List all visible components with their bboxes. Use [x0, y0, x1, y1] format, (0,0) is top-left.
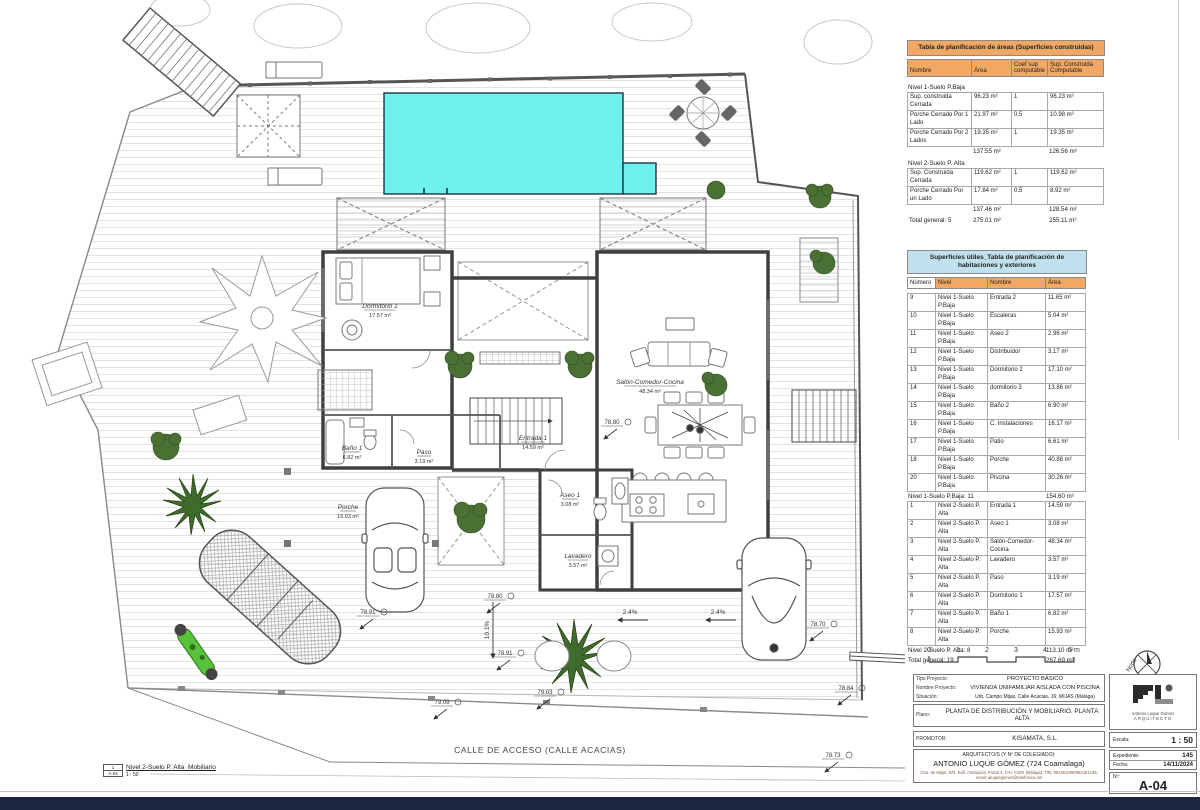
elevation-arrow	[434, 709, 447, 719]
room-label: Dormitorio 1	[362, 303, 398, 310]
table-cell	[1011, 204, 1047, 215]
table-cell: Aseo 1	[987, 519, 1046, 538]
logo-icon	[1131, 683, 1175, 709]
table-cell: Porche Cerrado Por 2 Lados	[907, 128, 972, 147]
fecha-value: 14/11/2024	[1163, 762, 1193, 768]
car-driveway	[737, 538, 811, 660]
table-cell: 17.57 m²	[1045, 591, 1086, 610]
table-cell: 128.54 m²	[1047, 204, 1103, 215]
table-cell: Nivel 2-Suelo P. Alta	[935, 537, 988, 556]
table-row: 15Nivel 1-Suelo P.BajaBaño 26.90 m²	[907, 401, 1087, 419]
table-cell: Sup. construida Cerrada	[907, 92, 972, 111]
drawing-sheet: Dormitorio 117.57 m²Baño 16.82 m²Paso3.1…	[0, 0, 1200, 810]
nombre-label: Nombre Proyecto:	[916, 685, 968, 691]
table-row: 8Nivel 2-Suelo P. AltaPorche15.93 m²	[907, 627, 1087, 645]
table-cell: Sup. Construida Cerrada	[907, 168, 972, 187]
room-label: Porche	[338, 504, 359, 511]
table-cell: 10	[907, 311, 936, 330]
room-area-label: 3.19 m²	[415, 459, 434, 465]
table-cell: Porche Cerrado Por un Lado	[907, 186, 972, 205]
table-row: 20Nivel 1-Suelo P.BajaPiscina30.26 m²	[907, 473, 1087, 491]
table-row: Sup. Construida Cerrada119.62 m²1119.62 …	[907, 168, 1105, 186]
table-cell: Nivel 1-Suelo P.Baja	[935, 329, 988, 348]
street-label: CALLE DE ACCESO (CALLE ACACIAS)	[454, 745, 626, 755]
table-cell: Nivel 1-Suelo P.Baja	[935, 401, 988, 420]
escala-box: Escala: 1 : 50	[1109, 732, 1197, 748]
table-cell	[1011, 215, 1047, 226]
elevation-label: 79.09	[434, 700, 450, 706]
scale-bar: 012345 m	[927, 647, 1080, 662]
table-cell: 6.61 m²	[1045, 437, 1086, 456]
table-cell: 30.26 m²	[1045, 473, 1086, 492]
tipo-value: PROYECTO BÁSICO	[968, 676, 1102, 683]
room-label: Aseo 1	[559, 492, 581, 499]
table-cell: Total general: 5	[907, 215, 971, 226]
logo-title: ARQUITECTO	[1134, 716, 1172, 721]
column-header: Número	[907, 277, 936, 289]
table-row: 6Nivel 2-Suelo P. AltaDormitorio 117.57 …	[907, 591, 1087, 609]
table-cell: 11.65 m²	[1045, 293, 1086, 312]
column-header: Nombre	[987, 277, 1046, 289]
slope-label: 10.1%	[484, 621, 491, 640]
elevation-marker-icon	[455, 699, 461, 705]
elevation-label: 78.70	[810, 622, 826, 628]
scalebar-tick: 2	[985, 647, 989, 654]
swimming-pool	[384, 93, 656, 194]
elevation-label: 78.91	[497, 651, 513, 657]
table-row: 11Nivel 1-Suelo P.BajaAseo 22.96 m²	[907, 329, 1087, 347]
table-cell: 96.23 m²	[1047, 92, 1104, 111]
promotor-box: PROMOTOR: KISAMATA, S.L.	[913, 731, 1105, 747]
escala-value: 1 : 50	[1171, 735, 1193, 745]
table-cell: 3.57 m²	[1045, 555, 1086, 574]
table-cell: Nivel 2-Suelo P. Alta	[935, 573, 988, 592]
table-cell: Dormitorio 1	[987, 591, 1046, 610]
arquitecto-box: ARQUITECTO/S (Y Nº DE COLEGIADO): ANTONI…	[913, 749, 1105, 784]
table-cell: 255.11 m²	[1047, 215, 1103, 226]
table-cell: 15.93 m²	[1045, 627, 1086, 646]
table-row: 3Nivel 2-Suelo P. AltaSalón-Comedor-Coci…	[907, 537, 1087, 555]
table-cell: 1	[907, 501, 936, 520]
areas-table-title: Tabla de planificación de áreas (Superfi…	[907, 40, 1105, 56]
table-cell: 1	[1011, 92, 1048, 111]
arquitecto-value: ANTONIO LUQUE GÓMEZ (724 Coamalaga)	[916, 759, 1102, 768]
table-cell: 21.97 m²	[971, 110, 1012, 129]
table-row: Porche Cerrado Por un Lado17.84 m²0.58.9…	[907, 186, 1105, 204]
nombre-value: VIVIENDA UNIFAMILIAR AISLADA CON PISCINA	[968, 685, 1102, 692]
table-cell: Porche	[987, 627, 1046, 646]
expediente-value: 145	[1182, 752, 1193, 759]
table-cell: 0.5	[1011, 186, 1048, 205]
table-row: 4Nivel 2-Suelo P. AltaLavadero3.57 m²	[907, 555, 1087, 573]
table-cell: 119.62 m²	[971, 168, 1012, 187]
table-cell: 6	[907, 591, 936, 610]
elevation-marker-icon	[846, 752, 852, 758]
column-header: Nombre	[907, 59, 972, 77]
scalebar-tick: 3	[1014, 647, 1018, 654]
table-cell: Nivel 1-Suelo P.Baja: 11	[907, 491, 1045, 501]
table-cell: 275.01 m²	[971, 215, 1011, 226]
project-info-box: Tipo Proyecto: PROYECTO BÁSICO Nombre Pr…	[913, 674, 1105, 702]
legend-title: Nivel 2-Suelo P. Alta_Mobiliario	[126, 764, 216, 771]
table-cell: Nivel 2-Suelo P. Alta	[935, 555, 988, 574]
elevation-label: 78.91	[360, 610, 376, 616]
table-cell: Nivel 2-Suelo P. Alta	[935, 609, 988, 628]
expediente-fecha-box: Expediente: 145 Fecha: 14/11/2024	[1109, 750, 1197, 770]
tipo-label: Tipo Proyecto:	[916, 676, 968, 682]
table-cell: dormitorio 3	[987, 383, 1046, 402]
arquitecto-label: ARQUITECTO/S (Y Nº DE COLEGIADO):	[916, 752, 1102, 758]
table-group-label: Nivel 1-Suelo P.Baja	[908, 84, 1105, 91]
table-cell: Dormitorio 2	[987, 365, 1046, 384]
room-area-label: 15.93 m²	[337, 514, 359, 520]
floor-plan-area: Dormitorio 117.57 m²Baño 16.82 m²Paso3.1…	[0, 0, 905, 795]
table-cell: Escaleras	[987, 311, 1046, 330]
situacion-value: Urb. Campo Mijas, Calle Acacias, 16; MIJ…	[968, 694, 1102, 700]
table-cell: 3.17 m²	[1045, 347, 1086, 366]
right-panel: Tabla de planificación de áreas (Superfi…	[905, 0, 1198, 795]
table-cell: 137.55 m²	[971, 146, 1011, 157]
table-cell: 17.84 m²	[971, 186, 1012, 205]
table-cell: 17	[907, 437, 936, 456]
legend-badge: 1 A-04	[103, 764, 123, 777]
elevation-label: 78.80	[487, 594, 503, 600]
table-row: 12Nivel 1-Suelo P.BajaDistribuidor3.17 m…	[907, 347, 1087, 365]
table-cell: Piscina	[987, 473, 1046, 492]
table-cell: Nivel 1-Suelo P.Baja	[935, 455, 988, 474]
fecha-label: Fecha:	[1113, 762, 1163, 768]
table-cell: 16.17 m²	[1045, 419, 1086, 438]
table-cell: Nivel 1-Suelo P.Baja	[935, 311, 988, 330]
table-cell: 6.82 m²	[1045, 609, 1086, 628]
table-cell: 8	[907, 627, 936, 646]
table-cell: Nivel 1-Suelo P.Baja	[935, 293, 988, 312]
table-cell: Paso	[987, 573, 1046, 592]
table-cell: 17.10 m²	[1045, 365, 1086, 384]
plano-box: Plano: PLANTA DE DISTRIBUCIÓN Y MOBILIAR…	[913, 704, 1105, 727]
table-row: 2Nivel 2-Suelo P. AltaAseo 13.08 m²	[907, 519, 1087, 537]
table-cell: 4	[907, 555, 936, 574]
table-cell: Entrada 1	[987, 501, 1046, 520]
street	[128, 686, 905, 781]
scalebar-tick: 0	[927, 647, 931, 654]
table-cell	[907, 204, 971, 215]
table-row: 16Nivel 1-Suelo P.BajaC. Instalaciones16…	[907, 419, 1087, 437]
plano-value: PLANTA DE DISTRIBUCIÓN Y MOBILIARIO. PLA…	[942, 708, 1102, 723]
room-label: Lavadero	[564, 553, 591, 560]
table-cell: 10.98 m²	[1047, 110, 1104, 129]
areas-table-header: NombreÁreaCoef sup computableSup. Constr…	[907, 59, 1105, 76]
table-cell: 14.59 m²	[1045, 501, 1086, 520]
table-row: 1Nivel 2-Suelo P. AltaEntrada 114.59 m²	[907, 501, 1087, 519]
elevation-label: 79.03	[537, 690, 553, 696]
table-cell: Nivel 1-Suelo P.Baja	[935, 365, 988, 384]
table-row: 10Nivel 1-Suelo P.BajaEscaleras5.04 m²	[907, 311, 1087, 329]
table-cell: 3.08 m²	[1045, 519, 1086, 538]
table-row: 13Nivel 1-Suelo P.BajaDormitorio 217.10 …	[907, 365, 1087, 383]
north-label: Norte	[1126, 657, 1139, 673]
table-row: Porche Cerrado Por 2 Lados19.35 m²119.35…	[907, 128, 1105, 146]
table-cell: 5.04 m²	[1045, 311, 1086, 330]
table-cell: Nivel 1-Suelo P.Baja	[935, 437, 988, 456]
table-row: 9Nivel 1-Suelo P.BajaEntrada 211.65 m²	[907, 293, 1087, 311]
table-cell: 13	[907, 365, 936, 384]
table-cell: Nivel 1-Suelo P.Baja	[935, 383, 988, 402]
table-cell: 0.5	[1011, 110, 1048, 129]
table-row: Sup. construida Cerrada96.23 m²196.23 m²	[907, 92, 1105, 110]
situacion-label: Situación:	[916, 694, 968, 700]
table-cell: 6.90 m²	[1045, 401, 1086, 420]
column-header: Coef sup computable	[1011, 59, 1048, 77]
table-cell: 1	[1011, 128, 1048, 147]
column-header: Área	[1045, 277, 1086, 289]
scalebar-tick: 1	[956, 647, 960, 654]
table-cell: Aseo 2	[987, 329, 1046, 348]
table-cell	[1011, 146, 1047, 157]
arquitecto-note: Ctra. de Mijas, S/N, Edif. Andalucía, Po…	[916, 770, 1102, 781]
table-cell: Nivel 2-Suelo P. Alta	[935, 627, 988, 646]
table-cell: Nivel 2-Suelo P. Alta	[935, 501, 988, 520]
table-cell: 137.46 m²	[971, 204, 1011, 215]
table-cell: 18	[907, 455, 936, 474]
table-cell	[907, 146, 971, 157]
tree-outlines	[150, 0, 872, 64]
room-area-label: 3.57 m²	[569, 563, 588, 569]
table-cell: Nivel 2-Suelo P. Alta	[935, 519, 988, 538]
table-cell: 12	[907, 347, 936, 366]
room-label: Baño 1	[342, 445, 363, 452]
subtotal-row: Nivel 1-Suelo P.Baja: 11154.60 m²	[907, 491, 1087, 501]
table-cell: 119.62 m²	[1047, 168, 1104, 187]
table-cell: 154.60 m²	[1045, 491, 1087, 501]
table-cell: 2	[907, 519, 936, 538]
table-cell: 5	[907, 573, 936, 592]
room-label: Paso	[417, 449, 432, 456]
total-row: Total general: 5275.01 m²255.11 m²	[907, 215, 1105, 226]
table-cell: 1	[1011, 168, 1048, 187]
table-cell: 40.88 m²	[1045, 455, 1086, 474]
table-cell: Nivel 1-Suelo P.Baja	[935, 419, 988, 438]
table-cell: 19.35 m²	[1047, 128, 1104, 147]
sheet-frame-bottom	[0, 791, 1200, 792]
room-area-label: 3.08 m²	[561, 502, 580, 508]
table-row: Porche Cerrado Por 1 Lado21.97 m²0.510.9…	[907, 110, 1105, 128]
subtotal-row: 137.46 m²128.54 m²	[907, 204, 1105, 215]
table-cell: 126.56 m²	[1047, 146, 1103, 157]
table-cell: C. Instalaciones	[987, 419, 1046, 438]
scalebar-tick: 4	[1043, 647, 1047, 654]
promotor-value: KISAMATA, S.L.	[968, 735, 1102, 743]
table-row: 17Nivel 1-Suelo P.BajaPatio6.61 m²	[907, 437, 1087, 455]
table-cell: 3.19 m²	[1045, 573, 1086, 592]
table-cell: 8.92 m²	[1047, 186, 1104, 205]
table-cell: Nivel 1-Suelo P.Baja	[935, 473, 988, 492]
table-cell: 48.34 m²	[1045, 537, 1086, 556]
elevation-label: 78.80	[604, 420, 620, 426]
rooms-table-header: NúmeroNivelNombreÁrea	[907, 277, 1087, 288]
areas-table: Tabla de planificación de áreas (Superfi…	[907, 40, 1105, 226]
table-cell: 9	[907, 293, 936, 312]
table-cell: 19.35 m²	[971, 128, 1012, 147]
table-cell: 7	[907, 609, 936, 628]
slope-label: 2.4%	[623, 609, 638, 616]
table-cell: 20	[907, 473, 936, 492]
legend-sheet-ref: A-04	[104, 771, 122, 776]
rooms-table-title: Superficies útiles_Tabla de planificació…	[907, 250, 1087, 274]
table-cell: Porche	[987, 455, 1046, 474]
table-row: 7Nivel 2-Suelo P. AltaBaño 16.82 m²	[907, 609, 1087, 627]
table-row: 14Nivel 1-Suelo P.Bajadormitorio 313.86 …	[907, 383, 1087, 401]
table-cell: 2.96 m²	[1045, 329, 1086, 348]
column-header: Área	[971, 59, 1012, 77]
plano-label: Plano:	[916, 712, 942, 718]
table-cell: Lavadero	[987, 555, 1046, 574]
table-cell: Porche Cerrado Por 1 Lado	[907, 110, 972, 129]
expediente-label: Expediente:	[1113, 753, 1182, 759]
table-cell: Salón-Comedor-Cocina	[987, 537, 1046, 556]
table-cell: 14	[907, 383, 936, 402]
table-row: 5Nivel 2-Suelo P. AltaPaso3.19 m²	[907, 573, 1087, 591]
table-cell: 11	[907, 329, 936, 348]
table-cell: Patio	[987, 437, 1046, 456]
escala-label: Escala:	[1113, 737, 1129, 743]
rooms-table-body: 9Nivel 1-Suelo P.BajaEntrada 211.65 m²10…	[907, 293, 1087, 665]
rooms-table: Superficies útiles_Tabla de planificació…	[907, 250, 1087, 665]
sheet-frame-vertical	[1178, 0, 1179, 440]
subtotal-row: 137.55 m²126.56 m²	[907, 146, 1105, 157]
bottom-bar	[0, 797, 1200, 810]
table-cell: Baño 2	[987, 401, 1046, 420]
room-label: Entrada 1	[519, 435, 548, 442]
column-header: Sup. Construida Computable	[1047, 59, 1104, 77]
floor-plan: Dormitorio 117.57 m²Baño 16.82 m²Paso3.1…	[0, 0, 905, 795]
room-area-label: 14.59 m²	[522, 445, 544, 451]
table-cell: 13.86 m²	[1045, 383, 1086, 402]
table-cell: 15	[907, 401, 936, 420]
areas-table-body: Nivel 1-Suelo P.BajaSup. construida Cerr…	[907, 84, 1105, 226]
scalebar-tick: 5 m	[1068, 647, 1080, 654]
table-cell: Nivel 1-Suelo P.Baja	[935, 347, 988, 366]
title-block: Tipo Proyecto: PROYECTO BÁSICO Nombre Pr…	[913, 674, 1197, 796]
table-row: 18Nivel 1-Suelo P.BajaPorche40.88 m²	[907, 455, 1087, 473]
room-label: Salón-Comedor-Cocina	[616, 379, 684, 386]
table-cell: Entrada 2	[987, 293, 1046, 312]
slope-label: 2.4%	[711, 609, 726, 616]
table-cell: Baño 1	[987, 609, 1046, 628]
room-area-label: 48.34 m²	[639, 389, 661, 395]
column-header: Nivel	[935, 277, 988, 289]
promotor-label: PROMOTOR:	[916, 736, 968, 742]
elevation-label: 78.84	[838, 686, 854, 692]
architect-logo: Antonio Luque Gómez ARQUITECTO	[1109, 674, 1197, 730]
room-area-label: 6.82 m²	[343, 455, 362, 461]
table-group-label: Nivel 2-Suelo P. Alta	[908, 160, 1105, 167]
table-cell: 96.23 m²	[971, 92, 1012, 111]
table-cell: 3	[907, 537, 936, 556]
car-top-view	[362, 488, 428, 612]
table-cell: Distribuidor	[987, 347, 1046, 366]
table-cell: 16	[907, 419, 936, 438]
drawing-legend: 1 A-04 Nivel 2-Suelo P. Alta_Mobiliario …	[103, 764, 216, 778]
room-area-label: 17.57 m²	[369, 313, 391, 319]
elevation-label: 78.73	[825, 753, 841, 759]
table-cell: Nivel 2-Suelo P. Alta	[935, 591, 988, 610]
legend-scale: 1 : 50	[126, 772, 216, 778]
